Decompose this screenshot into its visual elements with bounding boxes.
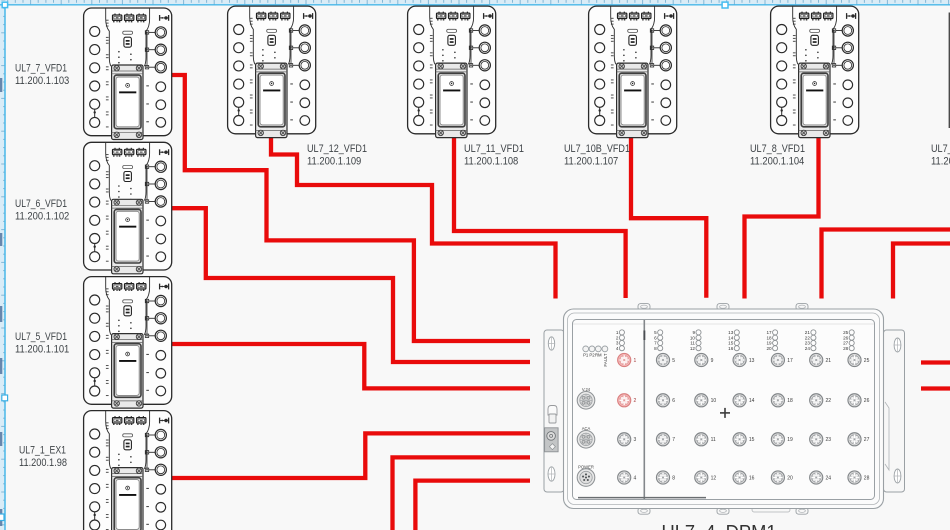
svg-text:11.200.1.109: 11.200.1.109 xyxy=(307,156,361,168)
svg-text:21: 21 xyxy=(826,358,832,364)
svg-text:14: 14 xyxy=(728,335,734,340)
svg-text:17: 17 xyxy=(787,358,793,364)
svg-text:11.200.1.101: 11.200.1.101 xyxy=(15,344,69,356)
svg-text:21: 21 xyxy=(805,330,811,335)
svg-text:28: 28 xyxy=(864,475,870,481)
svg-text:10: 10 xyxy=(711,398,717,404)
svg-text:26: 26 xyxy=(843,335,849,340)
svg-text:1: 1 xyxy=(616,330,619,335)
svg-text:23: 23 xyxy=(805,341,811,346)
svg-text:15: 15 xyxy=(749,437,755,443)
svg-text:11.200.1.102: 11.200.1.102 xyxy=(15,211,69,223)
svg-text:26: 26 xyxy=(864,398,870,404)
svg-text:14: 14 xyxy=(749,398,755,404)
svg-text:19: 19 xyxy=(766,341,772,346)
svg-text:8: 8 xyxy=(654,346,657,351)
svg-text:19: 19 xyxy=(787,437,793,443)
svg-text:22: 22 xyxy=(805,335,811,340)
svg-text:3: 3 xyxy=(634,437,637,443)
svg-text:4: 4 xyxy=(634,475,637,481)
svg-text:20: 20 xyxy=(787,475,793,481)
svg-text:4: 4 xyxy=(616,346,619,351)
svg-text:11.200.1.107: 11.200.1.107 xyxy=(564,156,618,168)
svg-text:11: 11 xyxy=(690,341,695,346)
svg-text:UL7_10B_VFD1: UL7_10B_VFD1 xyxy=(564,143,630,155)
svg-text:28: 28 xyxy=(843,346,849,351)
svg-text:UL7_8_VFD1: UL7_8_VFD1 xyxy=(750,143,805,155)
svg-text:24: 24 xyxy=(826,475,832,481)
svg-text:2: 2 xyxy=(616,335,619,340)
svg-text:UL7_5_VFD1: UL7_5_VFD1 xyxy=(15,331,67,343)
svg-text:15: 15 xyxy=(728,341,734,346)
svg-text:16: 16 xyxy=(728,346,734,351)
svg-text:10: 10 xyxy=(690,335,696,340)
svg-text:18: 18 xyxy=(787,398,793,404)
svg-text:2: 2 xyxy=(634,398,637,404)
svg-text:24: 24 xyxy=(805,346,811,351)
svg-text:RM: RM xyxy=(595,353,602,358)
svg-text:13: 13 xyxy=(728,330,734,335)
svg-text:6: 6 xyxy=(672,398,675,404)
svg-text:FAULT: FAULT xyxy=(603,353,608,366)
svg-text:16: 16 xyxy=(749,475,755,481)
svg-text:UL7_1_EX1: UL7_1_EX1 xyxy=(19,445,66,457)
svg-text:11.200.1.103: 11.200.1.103 xyxy=(15,75,69,87)
svg-text:25: 25 xyxy=(864,358,870,364)
svg-text:5: 5 xyxy=(672,358,675,364)
svg-text:P1: P1 xyxy=(583,353,589,358)
svg-text:17: 17 xyxy=(766,330,772,335)
svg-text:1: 1 xyxy=(634,358,637,364)
svg-text:3: 3 xyxy=(616,341,619,346)
svg-text:P2: P2 xyxy=(589,353,595,358)
svg-text:11: 11 xyxy=(711,437,716,443)
svg-text:25: 25 xyxy=(843,330,849,335)
svg-text:27: 27 xyxy=(843,341,849,346)
svg-text:7: 7 xyxy=(654,341,657,346)
svg-text:12: 12 xyxy=(711,475,717,481)
svg-text:18: 18 xyxy=(766,335,772,340)
svg-text:9: 9 xyxy=(692,330,695,335)
svg-text:UL7_11_VFD1: UL7_11_VFD1 xyxy=(464,143,524,155)
svg-text:11.200.1.104: 11.200.1.104 xyxy=(750,156,804,168)
svg-text:7: 7 xyxy=(672,437,675,443)
svg-text:23: 23 xyxy=(826,437,832,443)
svg-text:11.200.1.108: 11.200.1.108 xyxy=(464,156,518,168)
svg-text:UL7_6_VFD1: UL7_6_VFD1 xyxy=(15,198,67,210)
svg-text:20: 20 xyxy=(766,346,772,351)
svg-text:13: 13 xyxy=(749,358,755,364)
svg-text:5: 5 xyxy=(654,330,657,335)
svg-text:27: 27 xyxy=(864,437,870,443)
svg-text:11.200.1.98: 11.200.1.98 xyxy=(19,457,67,469)
svg-text:8: 8 xyxy=(672,475,675,481)
svg-text:22: 22 xyxy=(826,398,832,404)
svg-text:UL7_4_DPM1: UL7_4_DPM1 xyxy=(662,521,777,530)
svg-text:6: 6 xyxy=(654,335,657,340)
svg-text:12: 12 xyxy=(690,346,696,351)
svg-text:9: 9 xyxy=(711,358,714,364)
svg-text:UL7_12_VFD1: UL7_12_VFD1 xyxy=(307,143,367,155)
svg-text:11.200.1.105: 11.200.1.105 xyxy=(931,156,950,168)
svg-text:UL7_9_VFD1: UL7_9_VFD1 xyxy=(931,143,950,155)
svg-text:UL7_7_VFD1: UL7_7_VFD1 xyxy=(15,63,67,75)
